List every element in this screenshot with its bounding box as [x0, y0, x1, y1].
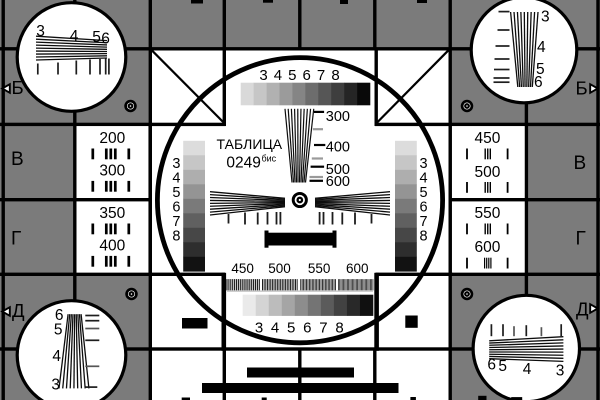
svg-text:450: 450 [474, 130, 500, 147]
svg-text:6: 6 [303, 67, 311, 84]
svg-text:3: 3 [259, 67, 267, 84]
svg-text:5: 5 [288, 67, 296, 84]
svg-text:Г: Г [11, 229, 21, 250]
svg-text:В: В [574, 153, 587, 174]
svg-text:6: 6 [303, 320, 311, 337]
svg-text:3: 3 [255, 320, 263, 337]
svg-text:3: 3 [51, 377, 60, 394]
svg-text:500: 500 [268, 261, 291, 276]
svg-text:8: 8 [335, 320, 343, 337]
svg-text:8: 8 [420, 229, 428, 245]
svg-text:6: 6 [534, 74, 543, 91]
svg-text:600: 600 [474, 239, 500, 256]
svg-text:200: 200 [99, 130, 125, 147]
svg-text:4: 4 [52, 348, 61, 365]
svg-text:4: 4 [523, 361, 532, 378]
svg-text:бис: бис [262, 153, 277, 163]
svg-text:7: 7 [317, 67, 325, 84]
svg-text:3: 3 [541, 9, 550, 26]
svg-text:7: 7 [319, 320, 327, 337]
svg-text:300: 300 [99, 163, 125, 180]
svg-text:600: 600 [346, 261, 369, 276]
svg-text:500: 500 [474, 164, 500, 181]
svg-text:5: 5 [287, 320, 295, 337]
svg-text:Б: Б [576, 78, 588, 99]
svg-text:Д: Д [576, 299, 589, 320]
svg-text:8: 8 [331, 67, 339, 84]
svg-text:ТАБЛИЦА: ТАБЛИЦА [217, 136, 283, 152]
svg-text:550: 550 [308, 261, 331, 276]
svg-text:4: 4 [70, 28, 79, 45]
svg-text:8: 8 [172, 229, 180, 245]
svg-text:В: В [11, 149, 24, 170]
svg-text:Б: Б [12, 77, 24, 98]
svg-text:4: 4 [271, 320, 279, 337]
svg-text:3: 3 [556, 363, 565, 380]
svg-text:600: 600 [326, 174, 350, 190]
svg-text:4: 4 [274, 67, 282, 84]
svg-text:6: 6 [101, 31, 110, 48]
svg-text:300: 300 [326, 109, 350, 125]
svg-text:400: 400 [326, 140, 350, 156]
svg-text:550: 550 [474, 205, 500, 222]
svg-text:3: 3 [36, 23, 45, 40]
svg-text:5: 5 [498, 358, 507, 375]
svg-text:450: 450 [231, 261, 254, 276]
svg-text:6: 6 [487, 357, 496, 374]
svg-text:5: 5 [54, 322, 63, 339]
svg-text:4: 4 [537, 39, 546, 56]
svg-text:350: 350 [99, 205, 125, 222]
svg-text:400: 400 [99, 238, 125, 255]
svg-text:Д: Д [12, 300, 25, 321]
svg-text:0249: 0249 [226, 155, 260, 172]
svg-text:5: 5 [92, 29, 101, 46]
svg-text:Г: Г [576, 229, 586, 250]
